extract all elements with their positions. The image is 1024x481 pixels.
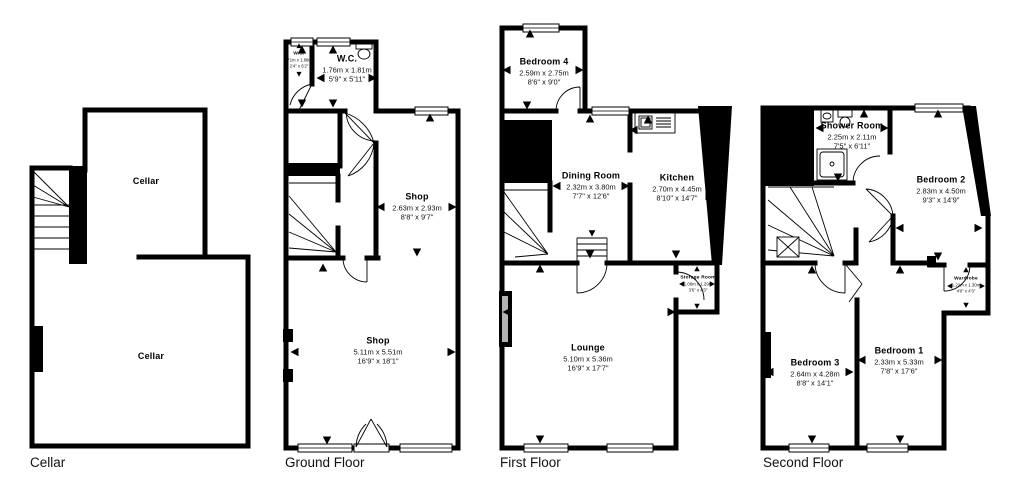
room-label-kitchen: Kitchen 2.70m x 4.45m 8'10" x 14'7" — [652, 172, 702, 203]
room-name: W.C. — [322, 53, 372, 65]
entry-door-gap — [354, 444, 389, 452]
floor-label-first: First Floor — [500, 455, 561, 470]
second-wall-notch — [927, 256, 936, 267]
room-dim-imperial: 8'6" x 9'0" — [519, 78, 569, 88]
ground-wall-band — [287, 163, 340, 176]
room-dim-imperial: 8'8" x 14'1" — [790, 379, 840, 389]
room-dim-imperial: 9'3" x 14'9" — [916, 196, 966, 206]
room-dim-metric: 2.25m x 2.11m — [821, 132, 884, 142]
cellar-chimney-stub — [30, 326, 43, 372]
room-name: Bedroom 2 — [916, 174, 966, 186]
room-dim-metric: 5.11m x 5.51m — [353, 347, 402, 357]
room-name: Bedroom 4 — [519, 56, 569, 68]
second-slanted-wall — [962, 106, 991, 216]
room-name: Dining Room — [562, 170, 620, 182]
room-label-shop-upper: Shop 2.63m x 2.93m 8'8" x 9'7" — [392, 191, 442, 222]
room-label-cellar-upper: Cellar — [133, 176, 159, 188]
room-dim-metric: 1.22m x 1.30m — [952, 283, 980, 289]
first-walls — [502, 28, 717, 448]
room-label-storage: Storage Room 1.06m x 1.29m 3'6" x 4'3" — [680, 275, 715, 292]
room-name: Shop — [392, 191, 442, 203]
room-dim-metric: 2.59m x 2.75m — [519, 68, 569, 78]
floor-label-ground: Ground Floor — [285, 455, 365, 470]
floor-label-cellar: Cellar — [30, 455, 65, 470]
room-dim-imperial: 7'5" x 6'11" — [821, 142, 884, 152]
ground-walls — [286, 42, 458, 448]
ground-stairs — [289, 183, 336, 252]
second-stairs — [768, 187, 834, 257]
room-name: Lounge — [563, 342, 613, 354]
cellar-stairs — [33, 171, 69, 249]
room-dim-imperial: 8'8" x 9'7" — [392, 213, 442, 223]
room-label-wc-small: W.C. .71m x 1.88m 2'4" x 6'2" — [286, 51, 312, 68]
room-dim-metric: 2.64m x 4.28m — [790, 369, 840, 379]
first-chimney-block — [502, 120, 552, 183]
room-name: Cellar — [133, 176, 159, 188]
room-dim-metric: 5.10m x 5.36m — [563, 354, 613, 364]
first-stairs — [504, 190, 548, 257]
room-dim-imperial: 4'0" x 4'3" — [952, 288, 980, 294]
room-label-bedroom3: Bedroom 3 2.64m x 4.28m 8'8" x 14'1" — [790, 357, 840, 388]
shower-tray-icon — [817, 149, 847, 180]
room-label-shower: Shower Room 2.25m x 2.11m 7'5" x 6'11" — [821, 120, 884, 151]
room-name: Cellar — [138, 351, 164, 363]
floorplan-page: { "floors": { "cellar": {"label": "Cella… — [0, 0, 1024, 481]
room-label-lounge: Lounge 5.10m x 5.36m 16'9" x 17'7" — [563, 342, 613, 373]
room-name: Kitchen — [652, 172, 702, 184]
room-name: Bedroom 1 — [874, 345, 924, 357]
room-label-bedroom4: Bedroom 4 2.59m x 2.75m 8'6" x 9'0" — [519, 56, 569, 87]
windows-layer — [291, 24, 963, 452]
room-dim-imperial: 7'8" x 17'6" — [874, 367, 924, 377]
walls-layer — [32, 28, 988, 448]
first-slanted-wall — [698, 106, 732, 265]
chimney-inlays — [502, 296, 508, 342]
second-void-block — [761, 106, 814, 186]
ground-wall-stub-1 — [283, 329, 293, 342]
room-dim-metric: 2.33m x 5.33m — [874, 357, 924, 367]
room-dim-imperial: 16'9" x 17'7" — [563, 364, 613, 374]
room-dim-imperial: 2'4" x 6'2" — [286, 63, 312, 69]
room-label-shop-lower: Shop 5.11m x 5.51m 16'9" x 18'1" — [353, 335, 402, 366]
room-dim-imperial: 16'9" x 18'1" — [353, 357, 402, 367]
room-dim-metric: 1.06m x 1.29m — [680, 282, 715, 288]
room-dim-imperial: 5'9" x 5'11" — [322, 75, 372, 85]
room-name: Shower Room — [821, 120, 884, 132]
room-label-dining: Dining Room 2.32m x 3.80m 7'7" x 12'6" — [562, 170, 620, 201]
room-dim-metric: 2.70m x 4.45m — [652, 184, 702, 194]
cellar-walls — [32, 110, 248, 446]
kitchen-sink-icon — [635, 113, 675, 133]
room-dim-imperial: 7'7" x 12'6" — [562, 192, 620, 202]
room-name: Bedroom 3 — [790, 357, 840, 369]
room-label-bedroom2: Bedroom 2 2.83m x 4.50m 9'3" x 14'9" — [916, 174, 966, 205]
room-dim-metric: 2.32m x 3.80m — [562, 182, 620, 192]
room-dim-metric: 2.83m x 4.50m — [916, 186, 966, 196]
room-dim-metric: 2.63m x 2.93m — [392, 203, 442, 213]
cellar-stair-wall — [69, 166, 87, 264]
room-name: Shop — [353, 335, 402, 347]
room-dim-imperial: 3'6" x 4'3" — [680, 287, 715, 293]
room-dim-metric: .71m x 1.88m — [286, 58, 312, 64]
floor-label-second: Second Floor — [763, 455, 843, 470]
room-label-wc: W.C. 1.76m x 1.81m 5'9" x 5'11" — [322, 53, 372, 84]
ground-wall-stub-2 — [283, 369, 293, 382]
room-label-cellar-lower: Cellar — [138, 351, 164, 363]
first-straight-stair — [577, 238, 607, 262]
room-label-wardrobe: Wardrobe 1.22m x 1.30m 4'0" x 4'3" — [952, 276, 980, 293]
room-label-bedroom1: Bedroom 1 2.33m x 5.33m 7'8" x 17'6" — [874, 345, 924, 376]
floorplan-canvas — [0, 0, 1024, 481]
room-dim-metric: 1.76m x 1.81m — [322, 65, 372, 75]
room-dim-imperial: 8'10" x 14'7" — [652, 194, 702, 204]
